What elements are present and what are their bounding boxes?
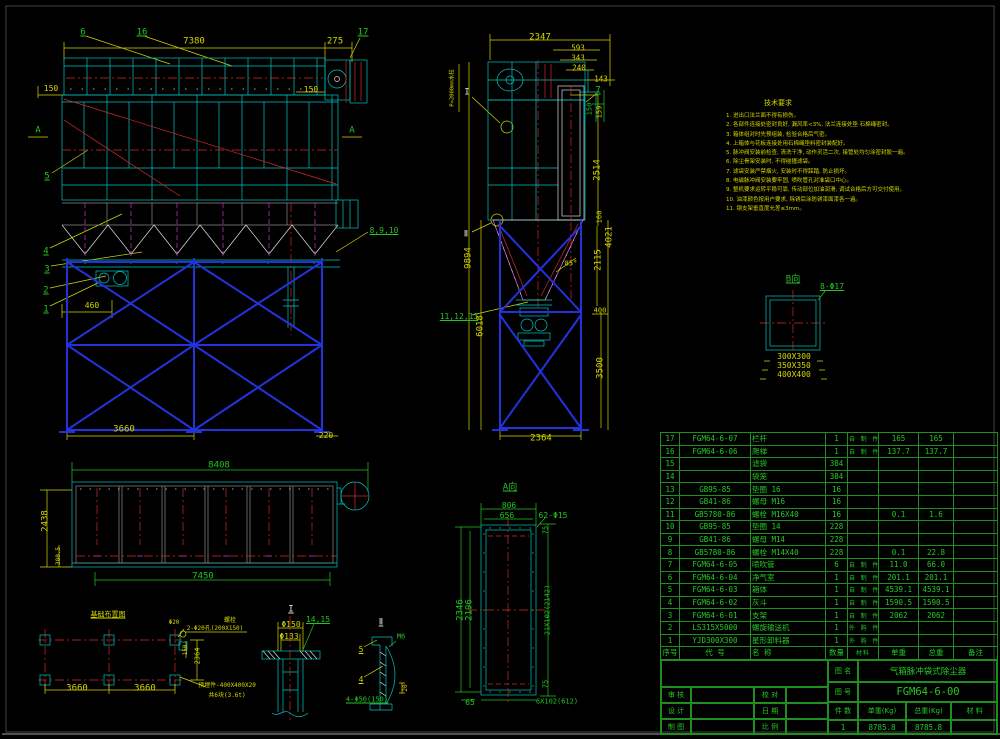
drawing-name-label: 图 名 <box>828 660 858 682</box>
parts-cell: 6 <box>661 571 680 584</box>
parts-cell <box>879 495 919 508</box>
callout-8-9-10: 8,9,10 <box>370 227 399 235</box>
callout-14-15: 14,15 <box>306 616 330 624</box>
dim-2514: 2514 <box>594 159 603 181</box>
dim-343: 343 <box>571 54 585 62</box>
parts-cell <box>848 495 879 508</box>
dim-6x102: 6X102(612) <box>536 699 578 706</box>
dim-m6: M6 <box>397 634 405 641</box>
parts-cell <box>848 458 879 471</box>
drawing-name-value: 气箱脉冲袋式除尘器 <box>858 660 998 682</box>
dim-143: 143 <box>594 75 608 83</box>
parts-row: 5FGM64-6-03箱体1自 制 件4539.14539.1 <box>661 584 998 597</box>
parts-cell <box>954 584 998 597</box>
parts-cell <box>919 458 954 471</box>
parts-cell <box>879 458 919 471</box>
parts-cell <box>954 458 998 471</box>
parts-cell <box>848 483 879 496</box>
parts-row: 1YJD300X300星形卸料器1外 购 件 <box>661 634 998 647</box>
parts-cell: 1 <box>826 621 848 634</box>
callout-5b: 5 <box>359 646 364 654</box>
parts-cell: 箱体 <box>751 584 826 597</box>
parts-cell: 5 <box>661 584 680 597</box>
parts-cell: 16 <box>661 445 680 458</box>
dim-3660-front: 3660 <box>113 426 135 435</box>
material-value <box>951 720 998 735</box>
parts-cell: 0.1 <box>879 508 919 521</box>
parts-cell <box>879 483 919 496</box>
parts-cell <box>954 445 998 458</box>
parts-cell: 材料 <box>848 647 879 660</box>
dim-21x102: 21X102(2142) <box>545 585 552 636</box>
parts-cell: 序号 <box>661 647 680 660</box>
design-value <box>691 703 754 719</box>
parts-cell: 灰斗 <box>751 596 826 609</box>
parts-cell: 代 号 <box>680 647 751 660</box>
parts-cell <box>879 470 919 483</box>
parts-cell: GB5780-86 <box>680 508 751 521</box>
parts-cell <box>919 634 954 647</box>
dim-2364-side: 2364 <box>530 435 552 444</box>
parts-cell: 6 <box>826 558 848 571</box>
view-title-i: I <box>288 606 293 615</box>
parts-row: 10GB95-85垫圈 14228 <box>661 521 998 534</box>
drawing-no-value: FGM64-6-00 <box>858 682 998 702</box>
dim-3500: 3500 <box>597 357 606 379</box>
callout-5: 5 <box>44 173 49 182</box>
parts-cell <box>954 470 998 483</box>
dim-6018: 6018 <box>477 315 486 337</box>
material-label: 材 料 <box>951 702 998 720</box>
parts-cell <box>879 634 919 647</box>
dim-400: 400 <box>594 308 607 315</box>
parts-cell: 螺母 M16 <box>751 495 826 508</box>
parts-cell <box>848 470 879 483</box>
parts-cell: 外 购 件 <box>848 621 879 634</box>
parts-cell: 165 <box>879 433 919 446</box>
parts-cell <box>954 634 998 647</box>
callout-7: 7 <box>595 87 600 96</box>
note-line: 4. 上箱体与花板连接处用石棉绳垫料密封装配好。 <box>726 140 911 149</box>
draft-value <box>691 719 754 735</box>
parts-cell: 爬梯 <box>751 445 826 458</box>
parts-cell <box>919 621 954 634</box>
dim-350x350: 350X350 <box>777 362 811 370</box>
cad-drawing-canvas: 技术要求 1. 进出口法兰面不得有损伤。2. 各部件连接处密封良好, 漏风率<3… <box>0 0 1000 739</box>
dim-3660-a: 3660 <box>66 685 88 694</box>
parts-cell: 16 <box>826 483 848 496</box>
parts-cell: GB5780-86 <box>680 546 751 559</box>
parts-cell: FGM64-6-03 <box>680 584 751 597</box>
parts-cell: 8 <box>661 546 680 559</box>
parts-cell: 星形卸料器 <box>751 634 826 647</box>
parts-cell <box>954 621 998 634</box>
parts-cell: 螺旋输送机 <box>751 621 826 634</box>
parts-cell: 自 制 件 <box>848 596 879 609</box>
dim-7380: 7380 <box>183 38 205 47</box>
parts-cell: FGM64-6-06 <box>680 445 751 458</box>
parts-row: 4FGM64-6-02灰斗1自 制 件1590.51590.5 <box>661 596 998 609</box>
callout-3: 3 <box>44 266 49 275</box>
parts-row: 12GB41-86螺母 M1616 <box>661 495 998 508</box>
parts-cell: 自 制 件 <box>848 433 879 446</box>
review-value <box>691 687 754 703</box>
parts-header-row: 序号代 号名 称数量材料单重总重备注 <box>661 647 998 660</box>
section-a-right: A <box>349 127 354 136</box>
parts-cell: 2062 <box>879 609 919 622</box>
parts-cell <box>954 483 998 496</box>
parts-cell: 1 <box>826 584 848 597</box>
dim-4021: 4021 <box>606 226 615 248</box>
dim-d150: Φ150 <box>281 621 300 629</box>
parts-cell: 净气室 <box>751 571 826 584</box>
parts-cell: 13 <box>661 483 680 496</box>
parts-cell: 1590.5 <box>919 596 954 609</box>
parts-cell: 1 <box>826 609 848 622</box>
parts-cell: 自 制 件 <box>848 558 879 571</box>
parts-cell: 228 <box>826 546 848 559</box>
parts-cell: FGM64-6-02 <box>680 596 751 609</box>
parts-cell: 384 <box>826 470 848 483</box>
side-elevation-linework <box>459 34 615 440</box>
total-weight-label: 总重(Kg) <box>906 702 951 720</box>
dim-400x400: 400X400 <box>777 371 811 379</box>
draft-label: 制 图 <box>661 719 691 735</box>
view-title-a: A向 <box>503 484 517 493</box>
parts-cell: 16 <box>826 508 848 521</box>
design-label: 设 计 <box>661 703 691 719</box>
parts-cell <box>919 495 954 508</box>
dim-160: 160 <box>597 211 604 224</box>
detail-marker-ii: Ⅱ <box>464 231 468 240</box>
parts-cell: YJD300X300 <box>680 634 751 647</box>
parts-cell <box>954 571 998 584</box>
parts-cell: 7 <box>661 558 680 571</box>
parts-cell: 螺母 M14 <box>751 533 826 546</box>
parts-row: 14袋笼384 <box>661 470 998 483</box>
dim-65: 65 <box>465 699 475 707</box>
parts-cell: FGM64-6-01 <box>680 609 751 622</box>
note-line: 3. 箱体组对时先预组装, 检验合格后气密。 <box>726 131 911 140</box>
parts-cell: 201.1 <box>919 571 954 584</box>
date-value <box>786 703 828 719</box>
dim-75-bot: 75 <box>543 680 550 688</box>
parts-cell: 14 <box>661 470 680 483</box>
note-bolt: 螺栓 <box>224 618 236 624</box>
parts-cell <box>954 609 998 622</box>
parts-cell <box>879 521 919 534</box>
dim-150-anchor: 150 <box>183 645 189 656</box>
parts-cell: 1 <box>826 571 848 584</box>
parts-cell: 16 <box>826 495 848 508</box>
dim-159: 159 <box>597 106 604 119</box>
pressure-note: P=2000mm水柱 <box>450 69 456 107</box>
parts-cell: 喷吹管 <box>751 558 826 571</box>
parts-cell: 袋笼 <box>751 470 826 483</box>
parts-cell: 228 <box>826 521 848 534</box>
dim-380-5: 380.5 <box>56 547 62 565</box>
dim-2347: 2347 <box>529 34 551 43</box>
dim-20: 20 <box>403 684 409 691</box>
parts-cell: 11.0 <box>879 558 919 571</box>
qty-label: 件 数 <box>828 702 858 720</box>
dim-150-stack: 150 <box>587 103 594 116</box>
dim-4-d50: 4-Φ50(150) <box>346 697 388 704</box>
note-line: 9. 整机要求运转平稳可靠, 传动部位加油润滑, 调试合格后方可交付使用。 <box>726 186 911 195</box>
callout-1: 1 <box>43 306 48 315</box>
parts-cell: 4539.1 <box>919 584 954 597</box>
parts-cell: GB41-86 <box>680 495 751 508</box>
view-title-b: B向 <box>786 276 800 285</box>
parts-cell <box>848 521 879 534</box>
note-line: 11. 钢支架垂直度允差≤3mm。 <box>726 205 911 214</box>
dim-220: 220 <box>319 432 333 440</box>
parts-cell: 3 <box>661 609 680 622</box>
parts-cell: 1 <box>826 445 848 458</box>
parts-cell: 自 制 件 <box>848 571 879 584</box>
parts-cell <box>919 470 954 483</box>
note-line: 8. 电磁脉冲阀安装要牢固, 喷吹管孔对准袋口中心。 <box>726 177 911 186</box>
parts-cell: 66.0 <box>919 558 954 571</box>
callout-4: 4 <box>43 248 48 257</box>
dim-150-left: 150 <box>44 85 58 93</box>
callout-17: 17 <box>358 29 369 38</box>
parts-cell <box>954 546 998 559</box>
unit-weight-label: 单重(Kg) <box>858 702 906 720</box>
parts-cell: 自 制 件 <box>848 584 879 597</box>
parts-cell <box>954 521 998 534</box>
dim-150-right: 150 <box>304 86 318 94</box>
technical-notes-list: 1. 进出口法兰面不得有损伤。2. 各部件连接处密封良好, 漏风率<3%, 法兰… <box>726 112 911 214</box>
parts-cell: 1 <box>826 634 848 647</box>
parts-cell: 外 购 件 <box>848 634 879 647</box>
parts-cell: 名 称 <box>751 647 826 660</box>
parts-cell: 228 <box>826 533 848 546</box>
parts-row: 7FGM64-6-05喷吹管6自 制 件11.066.0 <box>661 558 998 571</box>
parts-cell: 1 <box>661 634 680 647</box>
parts-cell: 1.6 <box>919 508 954 521</box>
parts-cell: 栏杆 <box>751 433 826 446</box>
title-block: 审 核 校 对 设 计 日 期 制 图 比 例 图 名 气箱脉冲袋式除尘器 图 … <box>660 659 997 734</box>
note-line: 2. 各部件连接处密封良好, 漏风率<3%, 法兰连接处垫 石棉绳密封。 <box>726 121 911 130</box>
parts-table: 17FGM64-6-07栏杆1自 制 件16516516FGM64-6-06爬梯… <box>660 432 998 660</box>
note-embed-qty: 共6块(3.6t) <box>208 693 245 699</box>
dim-9894: 9894 <box>465 247 474 269</box>
parts-cell: GB95-85 <box>680 521 751 534</box>
parts-cell: 垫圈 14 <box>751 521 826 534</box>
dim-2115: 2115 <box>595 249 604 271</box>
parts-cell: 201.1 <box>879 571 919 584</box>
note-line: 10. 油漆颜色按用户要求, 除锈后涂防锈漆面漆各一遍。 <box>726 196 911 205</box>
plan-view-linework <box>40 462 369 586</box>
note-line: 6. 除尘骨架安装时, 不得碰撞滤袋。 <box>726 158 911 167</box>
parts-cell <box>848 533 879 546</box>
dim-3660-b: 3660 <box>134 685 156 694</box>
detail-marker-i: I <box>464 89 469 98</box>
parts-cell: 22.8 <box>919 546 954 559</box>
parts-cell: 12 <box>661 495 680 508</box>
parts-cell: 10 <box>661 521 680 534</box>
parts-row: 8GB5780-86螺栓 M14X402280.122.8 <box>661 546 998 559</box>
scale-value <box>786 719 828 735</box>
view-title-foundation: 基础布置图 <box>91 612 126 619</box>
dim-656: 656 <box>500 512 514 520</box>
dim-8408: 8408 <box>208 462 230 471</box>
parts-cell: 165 <box>919 433 954 446</box>
parts-cell: 9 <box>661 533 680 546</box>
proof-value <box>786 687 828 703</box>
dim-300x300: 300X300 <box>777 353 811 361</box>
technical-notes-title: 技术要求 <box>726 98 911 108</box>
parts-cell <box>954 495 998 508</box>
parts-cell: 1 <box>826 433 848 446</box>
parts-cell: 螺栓 M14X40 <box>751 546 826 559</box>
parts-cell: 11 <box>661 508 680 521</box>
callout-6: 6 <box>80 29 85 38</box>
dim-8-d17: 8-Φ17 <box>820 283 844 291</box>
parts-row: 16FGM64-6-06爬梯1自 制 件137.7137.7 <box>661 445 998 458</box>
dim-d20: Φ20 <box>169 620 180 626</box>
parts-row: 17FGM64-6-07栏杆1自 制 件165165 <box>661 433 998 446</box>
parts-cell: FGM64-6-05 <box>680 558 751 571</box>
dim-2196: 2196 <box>466 599 475 621</box>
parts-cell <box>954 533 998 546</box>
note-line: 7. 滤袋安装严禁烟火, 安装时不得踩踏, 防止损坏。 <box>726 168 911 177</box>
technical-notes: 技术要求 1. 进出口法兰面不得有损伤。2. 各部件连接处密封良好, 漏风率<3… <box>726 98 911 214</box>
parts-cell <box>954 433 998 446</box>
parts-cell: 0.1 <box>879 546 919 559</box>
title-block-blank-cell <box>661 660 828 687</box>
front-elevation-linework <box>28 36 368 440</box>
parts-cell: 螺栓 M16X40 <box>751 508 826 521</box>
parts-row: 9GB41-86螺母 M14228 <box>661 533 998 546</box>
dim-593: 593 <box>571 44 585 52</box>
parts-cell: 备注 <box>954 647 998 660</box>
callout-2: 2 <box>43 287 48 296</box>
parts-cell: 垫圈 16 <box>751 483 826 496</box>
parts-cell <box>848 508 879 521</box>
parts-cell <box>919 521 954 534</box>
dim-460: 460 <box>85 302 99 310</box>
parts-cell: 17 <box>661 433 680 446</box>
parts-cell <box>879 621 919 634</box>
note-line: 1. 进出口法兰面不得有损伤。 <box>726 112 911 121</box>
parts-row: 13GB95-85垫圈 1616 <box>661 483 998 496</box>
dim-2364-fnd: 2364 <box>195 648 202 665</box>
parts-row: 3FGM64-6-01支架1自 制 件20622062 <box>661 609 998 622</box>
parts-cell: 滤袋 <box>751 458 826 471</box>
dim-240: 240 <box>572 64 586 72</box>
parts-row: 6FGM64-6-04净气室1自 制 件201.1201.1 <box>661 571 998 584</box>
view-title-ii: Ⅱ <box>379 619 383 628</box>
parts-cell: FGM64-6-07 <box>680 433 751 446</box>
parts-cell: 单重 <box>879 647 919 660</box>
section-a-left: A <box>35 127 40 136</box>
parts-cell: 自 制 件 <box>848 445 879 458</box>
scale-label: 比 例 <box>754 719 786 735</box>
qty-value: 1 <box>828 720 858 735</box>
parts-cell: 2062 <box>919 609 954 622</box>
parts-row: 11GB5780-86螺栓 M16X40160.11.6 <box>661 508 998 521</box>
parts-cell: GB41-86 <box>680 533 751 546</box>
note-embed-plate: 预埋件-400X400X20 <box>198 683 256 689</box>
dim-85deg: 85° <box>565 261 578 268</box>
callout-11-12-13: 11,12,13 <box>440 313 479 321</box>
callout-16: 16 <box>137 29 148 38</box>
parts-cell: 384 <box>826 458 848 471</box>
date-label: 日 期 <box>754 703 786 719</box>
parts-cell: 137.7 <box>919 445 954 458</box>
unit-weight-value: 8785.8 <box>858 720 906 735</box>
drawing-no-label: 图 号 <box>828 682 858 702</box>
dim-7450: 7450 <box>192 573 214 582</box>
parts-cell <box>919 483 954 496</box>
parts-cell: FGM64-6-04 <box>680 571 751 584</box>
parts-cell: 数量 <box>826 647 848 660</box>
parts-cell <box>954 558 998 571</box>
parts-cell <box>680 458 751 471</box>
parts-cell: 1590.5 <box>879 596 919 609</box>
total-weight-value: 8785.8 <box>906 720 951 735</box>
parts-cell <box>954 596 998 609</box>
parts-cell: 1 <box>826 596 848 609</box>
parts-cell: 2 <box>661 621 680 634</box>
note-holes: 2-Φ20孔(200X150) <box>187 626 244 632</box>
parts-cell: 15 <box>661 458 680 471</box>
dim-62-d15: 62-Φ15 <box>539 512 568 520</box>
parts-row: 15滤袋384 <box>661 458 998 471</box>
dim-75-top: 75 <box>543 526 550 534</box>
parts-cell: 总重 <box>919 647 954 660</box>
review-label: 审 核 <box>661 687 691 703</box>
parts-cell: LS315X5000 <box>680 621 751 634</box>
parts-cell <box>879 533 919 546</box>
parts-cell: 4 <box>661 596 680 609</box>
dim-275: 275 <box>327 38 343 47</box>
parts-cell: 137.7 <box>879 445 919 458</box>
parts-cell: 支架 <box>751 609 826 622</box>
callout-4b: 4 <box>359 676 364 684</box>
dim-d133: Φ133 <box>279 633 298 641</box>
dim-806: 806 <box>502 502 516 510</box>
parts-cell <box>680 470 751 483</box>
parts-cell <box>848 546 879 559</box>
parts-cell <box>954 508 998 521</box>
parts-cell: 自 制 件 <box>848 609 879 622</box>
parts-row: 2LS315X5000螺旋输送机1外 购 件 <box>661 621 998 634</box>
proof-label: 校 对 <box>754 687 786 703</box>
note-line: 5. 脉冲阀安装前检查, 清洗干净, 动作灵活二次, 接管处均匀涂密封胶一遍。 <box>726 149 911 158</box>
parts-cell: 4539.1 <box>879 584 919 597</box>
dim-2438: 2438 <box>42 510 51 532</box>
parts-cell <box>919 533 954 546</box>
parts-cell: GB95-85 <box>680 483 751 496</box>
